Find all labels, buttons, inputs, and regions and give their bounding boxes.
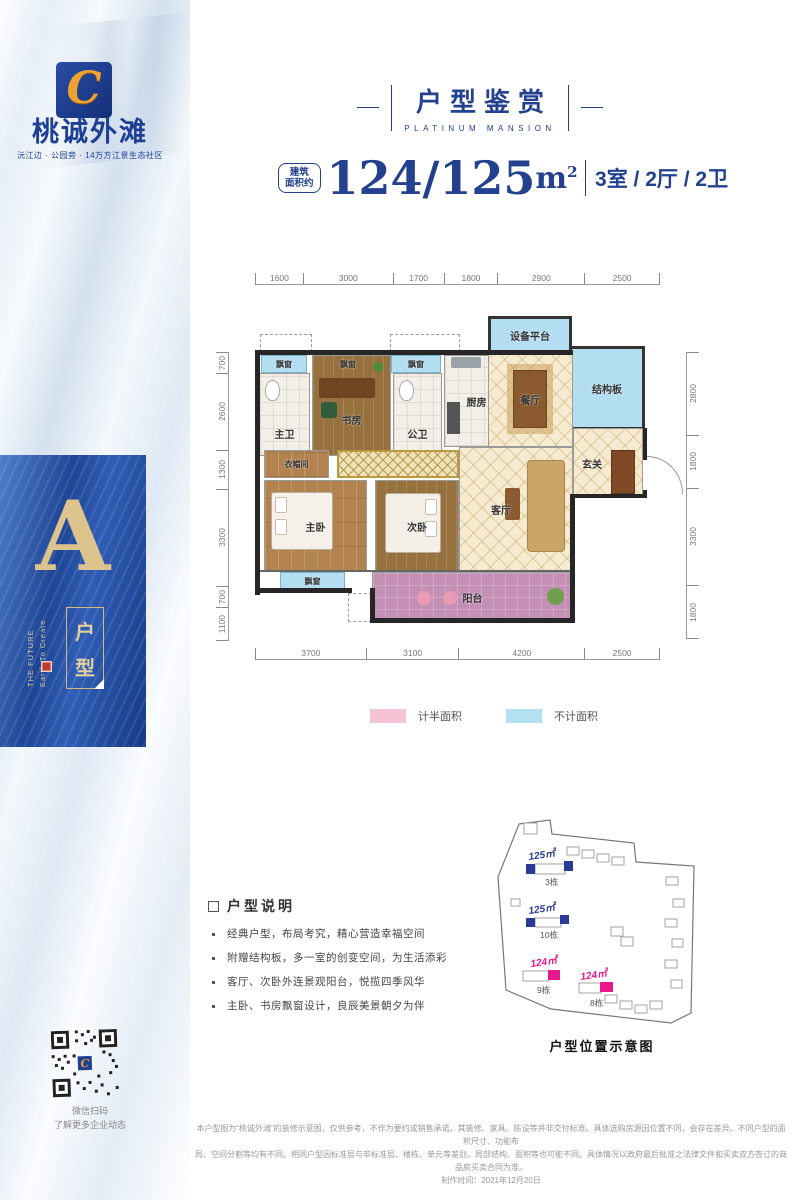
unit-type-char-2: 型 [75, 652, 95, 681]
qr-caption-line2: 了解更多企业动态 [10, 1118, 170, 1132]
marker-area-label: 124㎡ [580, 967, 610, 983]
legend-swatch-pink [370, 709, 406, 723]
dim-segment: 1800 [687, 585, 699, 638]
dim-segment: 1300 [216, 450, 228, 489]
wall [643, 428, 647, 460]
svg-text:C: C [80, 1057, 89, 1070]
unit-type-box: 户 型 [66, 607, 104, 689]
legend-label: 计半面积 [418, 708, 462, 724]
corner-fold [94, 679, 104, 689]
corridor-ceiling [337, 450, 459, 478]
plant-icon [373, 362, 383, 372]
page-title: 户型鉴赏 [404, 82, 555, 119]
description-item: 附赠结构板，多一室的创变空间，为生活添彩 [208, 950, 508, 965]
entry-door-icon [647, 456, 683, 494]
header-dash-right [581, 107, 603, 108]
bay-window: 飘窗 [261, 355, 307, 373]
dim-segment: 2500 [584, 273, 659, 285]
wall [255, 588, 352, 593]
dot-bullet-icon [212, 933, 215, 936]
brochure-page: C 桃诚外滩 沅江边 · 公园旁 · 14万方江景生态社区 A THE FUTU… [0, 0, 800, 1200]
slogan-en-2: THE FUTURE [26, 607, 35, 687]
qr-code-icon: C [51, 1029, 123, 1101]
dim-segment: 2800 [687, 352, 699, 435]
dim-segment: 2600 [216, 373, 228, 450]
ac-platform [348, 593, 372, 622]
shoe-cabinet-furniture [611, 450, 635, 494]
area-prefix-1: 建筑 [285, 167, 314, 178]
wall [573, 494, 647, 498]
wall [570, 494, 575, 623]
dim-segment: 2500 [584, 648, 659, 660]
dot-bullet-icon [212, 981, 215, 984]
study-desk-furniture [319, 378, 375, 398]
disclaimer-line2: 局、空间分割等均有不同。相同户型因标准层与非标准层、楼栋、单元等差别，局部结构、… [195, 1148, 787, 1174]
room-count: 3室 / 2厅 / 2卫 [595, 163, 728, 193]
brand-logo-letter: C [56, 62, 112, 116]
marker-building-label: 10栋 [540, 930, 558, 940]
dim-segment: 1100 [216, 607, 228, 640]
dim-segment: 1700 [393, 273, 444, 285]
qr-caption-line1: 微信扫码 [10, 1104, 170, 1118]
room-equipment-platform: 设备平台 [488, 316, 572, 352]
room-balcony: 阳台 [372, 572, 573, 623]
legend-swatch-blue [506, 709, 542, 723]
legend-label: 不计面积 [554, 708, 598, 724]
room-structural-board: 结构板 [569, 346, 645, 430]
dim-segment: 3700 [255, 648, 366, 660]
dim-segment: 3300 [687, 488, 699, 586]
qr-caption: 微信扫码 了解更多企业动态 [10, 1104, 170, 1132]
floor-plan: 设备平台 结构板 飘窗 飘窗 飘窗 飘窗 主卫 书房 公卫 厨房 餐厅 玄关 衣… [255, 310, 665, 640]
header-bar-left [391, 85, 392, 131]
description-item: 客厅、次卧外连景观阳台，悦揽四季风华 [208, 974, 508, 989]
marker-area-label: 125㎡ [528, 901, 558, 917]
dot-bullet-icon [212, 957, 215, 960]
plan-type-banner: A THE FUTURE Earth To Create 户 型 [0, 455, 146, 747]
room-cloakroom: 衣帽间 [264, 450, 329, 478]
plan-legend: 计半面积 不计面积 [370, 708, 598, 724]
disclaimer-line1: 本户型图为“桃诚外滩”的装修示意图，仅供参考，不作为要约或销售承诺。其装修、家具… [195, 1122, 787, 1148]
wall [260, 570, 570, 572]
brand-tagline: 沅江边 · 公园旁 · 14万方江景生态社区 [2, 150, 178, 161]
study-chair-furniture [321, 402, 337, 418]
marker-building-label: 9栋 [537, 985, 551, 995]
dim-segment: 3100 [366, 648, 459, 660]
stove-icon [447, 402, 460, 434]
area-unit: m2 [535, 161, 577, 196]
dim-chain-top: 1600 3000 1700 1800 2900 2500 [255, 273, 660, 285]
dim-segment: 3300 [216, 489, 228, 587]
dim-segment: 1600 [255, 273, 303, 285]
qr-code: C [51, 1029, 124, 1106]
header-bar-right [568, 85, 569, 131]
dim-segment: 1800 [687, 435, 699, 488]
area-prefix-2: 面积约 [285, 178, 314, 189]
dim-segment: 3000 [303, 273, 393, 285]
site-plan: 125㎡ 3栋 125㎡ 10栋 124㎡ 9栋 124㎡ 8栋 户型位置示意图 [493, 815, 711, 1055]
dim-segment: 700 [216, 352, 228, 373]
marker-area-label: 124㎡ [530, 954, 560, 970]
square-bullet-icon [208, 901, 219, 912]
sink-icon [451, 357, 481, 368]
wall [370, 618, 575, 623]
plan-description: 户型说明 经典户型，布局考究，精心营造幸福空间 附赠结构板，多一室的创变空间，为… [208, 896, 508, 1022]
dim-segment: 2900 [497, 273, 584, 285]
header-dash-left [357, 107, 379, 108]
site-plan-map: 125㎡ 3栋 125㎡ 10栋 124㎡ 9栋 124㎡ 8栋 [493, 815, 711, 1027]
dim-chain-right: 2800 1800 3300 1800 [686, 352, 699, 639]
slogan-en-1: Earth To Create [38, 607, 47, 687]
dim-segment: 1800 [444, 273, 498, 285]
plan-letter-slogan: THE FUTURE Earth To Create [26, 607, 47, 687]
unit-type-char-1: 户 [75, 616, 95, 645]
disclaimer-line3: 制作时间：2021年12月20日 [195, 1174, 787, 1187]
wall [255, 350, 260, 595]
dim-segment: 4200 [458, 648, 584, 660]
balcony-chair-icon [443, 591, 457, 605]
disclaimer: 本户型图为“桃诚外滩”的装修示意图，仅供参考，不作为要约或销售承诺。其装修、家具… [195, 1122, 787, 1187]
wall [255, 350, 573, 355]
red-seal-icon [41, 661, 52, 672]
marker-area-label: 125㎡ [528, 847, 558, 863]
dim-chain-left: 700 2600 1300 3300 700 1100 [216, 352, 229, 641]
sofa-furniture [527, 460, 565, 552]
marker-building-label: 8栋 [590, 998, 604, 1008]
area-value: 124/125 [327, 155, 536, 201]
area-spec: 建筑 面积约 124/125 m2 3室 / 2厅 / 2卫 [278, 150, 728, 206]
site-plan-caption: 户型位置示意图 [493, 1036, 711, 1055]
dim-segment: 700 [216, 586, 228, 607]
area-prefix-box: 建筑 面积约 [278, 163, 321, 193]
page-header: 户型鉴赏 PLATINUM MANSION [330, 82, 630, 133]
dot-bullet-icon [212, 1005, 215, 1008]
brand-name: 桃诚外滩 [2, 110, 178, 149]
spec-divider [585, 160, 587, 196]
page-subtitle: PLATINUM MANSION [404, 124, 555, 133]
description-title: 户型说明 [227, 896, 295, 916]
plan-letter: A [0, 489, 146, 585]
toilet-icon [399, 380, 414, 401]
dim-chain-bottom: 3700 3100 4200 2500 [255, 648, 660, 660]
balcony-chair-icon [417, 591, 431, 605]
marker-building-label: 3栋 [545, 877, 559, 887]
description-item: 经典户型，布局考究，精心营造幸福空间 [208, 926, 508, 941]
description-item: 主卧、书房飘窗设计，良辰美景朝夕为伴 [208, 998, 508, 1013]
bay-window: 飘窗 [391, 355, 441, 373]
toilet-icon [265, 380, 280, 401]
balcony-plant-icon [547, 588, 564, 605]
